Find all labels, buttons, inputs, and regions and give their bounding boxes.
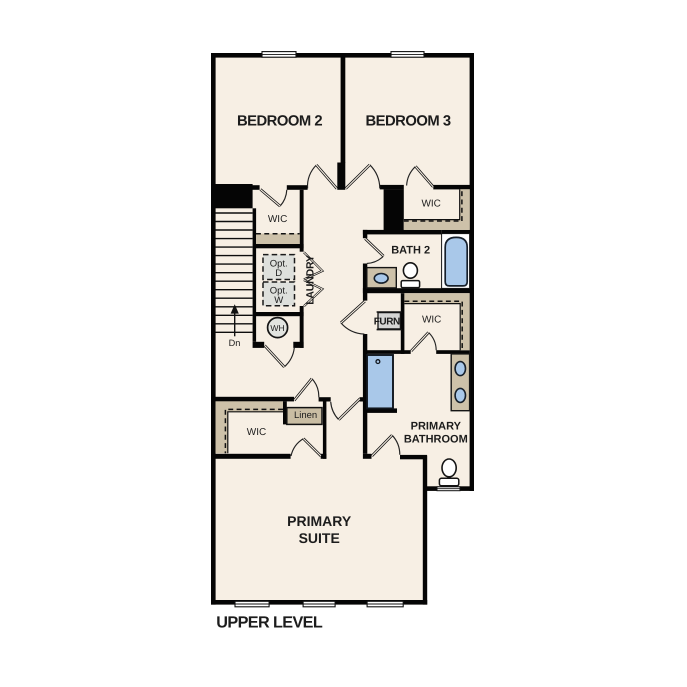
svg-text:BATHROOM: BATHROOM xyxy=(404,434,468,446)
svg-text:WH: WH xyxy=(270,323,284,333)
svg-text:UPPER LEVEL: UPPER LEVEL xyxy=(216,614,323,632)
svg-text:WIC: WIC xyxy=(268,214,287,225)
svg-text:BATH 2: BATH 2 xyxy=(391,244,430,256)
svg-text:PRIMARY: PRIMARY xyxy=(411,421,462,433)
svg-text:LAUNDRY: LAUNDRY xyxy=(304,255,316,305)
svg-text:BEDROOM 3: BEDROOM 3 xyxy=(365,113,450,129)
svg-text:WIC: WIC xyxy=(247,427,266,438)
svg-text:W: W xyxy=(274,295,283,306)
svg-text:BEDROOM 2: BEDROOM 2 xyxy=(237,113,322,129)
svg-text:WIC: WIC xyxy=(421,199,440,210)
svg-text:PRIMARY: PRIMARY xyxy=(287,513,352,529)
svg-text:SUITE: SUITE xyxy=(299,530,340,546)
svg-text:FURN: FURN xyxy=(374,316,400,327)
svg-text:D: D xyxy=(275,268,282,279)
svg-text:Linen: Linen xyxy=(294,410,317,421)
svg-text:WIC: WIC xyxy=(422,314,441,325)
svg-text:Dn: Dn xyxy=(229,338,241,348)
